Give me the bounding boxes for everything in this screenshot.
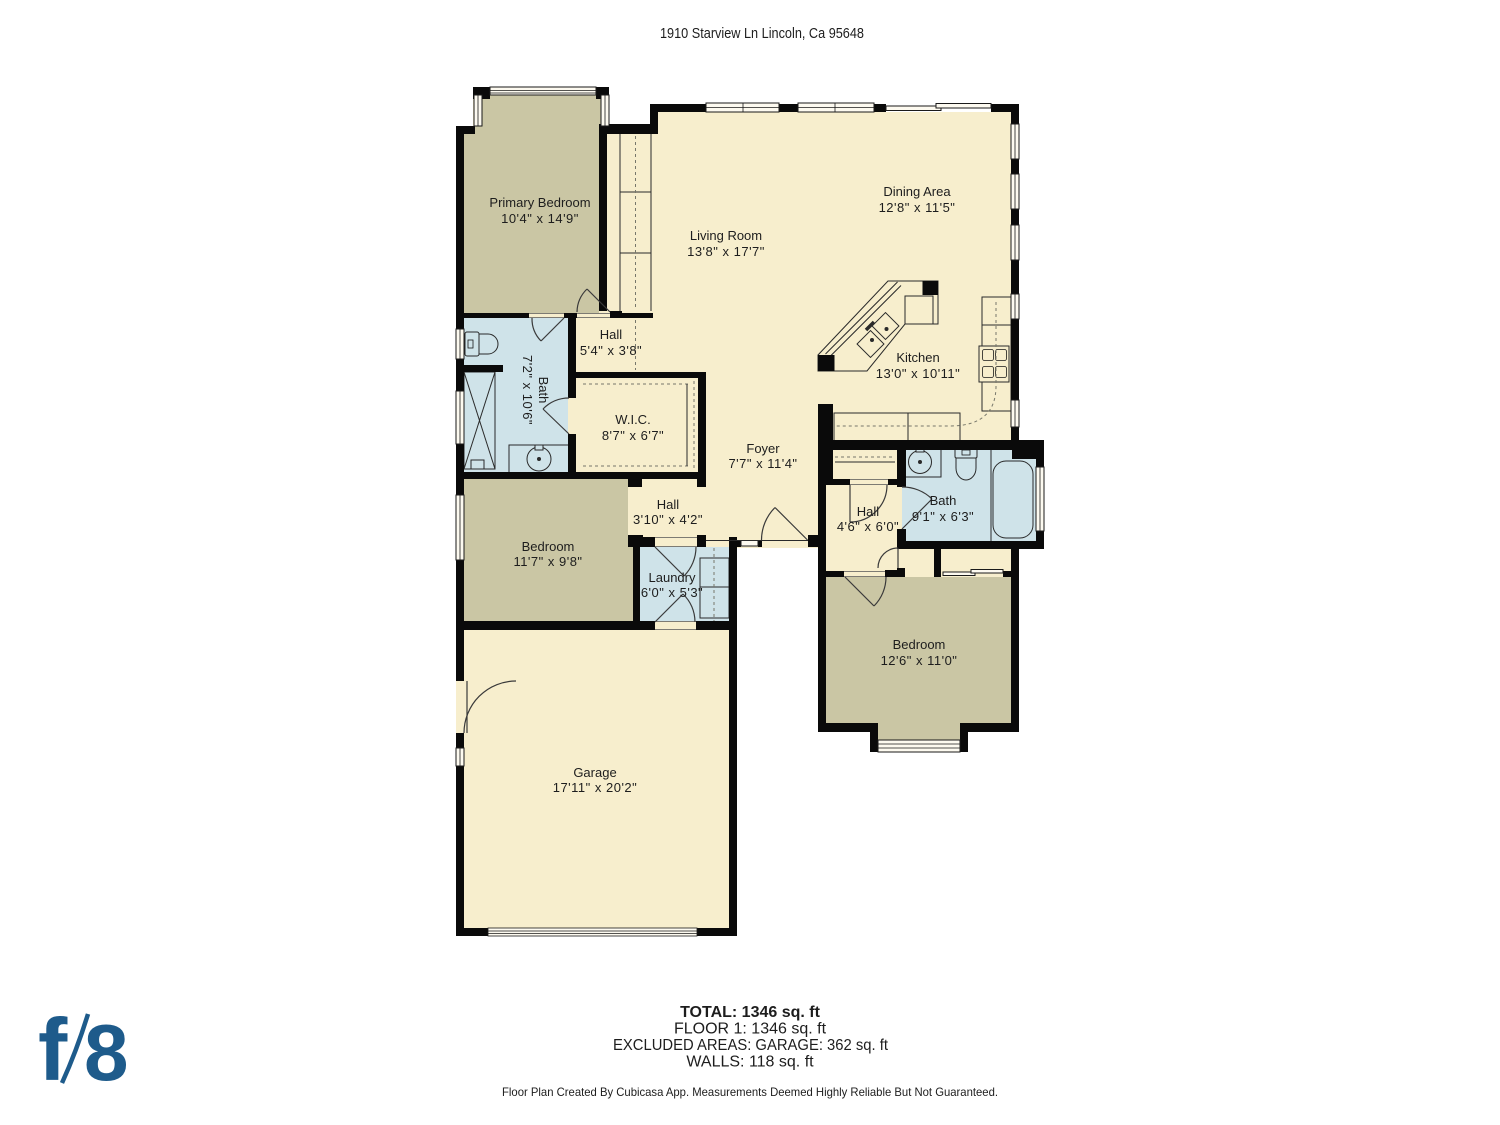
svg-text:Kitchen: Kitchen [896,350,939,365]
svg-text:Garage: Garage [573,765,616,780]
svg-text:Living Room: Living Room [690,228,762,243]
svg-text:6'0" x 5'3": 6'0" x 5'3" [641,585,703,600]
svg-text:TOTAL: 1346 sq. ft: TOTAL: 1346 sq. ft [680,1004,821,1021]
svg-text:FLOOR 1: 1346 sq. ft: FLOOR 1: 1346 sq. ft [674,1021,827,1038]
svg-text:Hall: Hall [857,504,880,519]
svg-text:f: f [38,1000,68,1099]
svg-text:3'10" x 4'2": 3'10" x 4'2" [633,512,703,527]
svg-text:4'6" x 6'0": 4'6" x 6'0" [837,519,899,534]
svg-text:Bedroom: Bedroom [522,539,575,554]
svg-text:13'8" x 17'7": 13'8" x 17'7" [687,244,765,259]
svg-text:7'2" x 10'6": 7'2" x 10'6" [520,355,535,425]
svg-text:1910 Starview Ln Lincoln, Ca 9: 1910 Starview Ln Lincoln, Ca 95648 [660,25,864,42]
svg-text:8'7" x 6'7": 8'7" x 6'7" [602,428,664,443]
svg-text:12'6" x 11'0": 12'6" x 11'0" [881,653,958,668]
svg-text:Hall: Hall [657,497,680,512]
svg-text:7'7" x 11'4": 7'7" x 11'4" [728,456,797,471]
svg-text:Dining Area: Dining Area [883,184,951,199]
svg-text:11'7" x 9'8": 11'7" x 9'8" [513,554,582,569]
svg-text:Hall: Hall [600,327,623,342]
svg-text:Laundry: Laundry [649,570,696,585]
svg-text:Bedroom: Bedroom [893,637,946,652]
svg-text:10'4" x 14'9": 10'4" x 14'9" [501,211,579,226]
svg-text:Foyer: Foyer [746,441,780,456]
svg-text:EXCLUDED AREAS: GARAGE: 362 sq: EXCLUDED AREAS: GARAGE: 362 sq. ft [613,1037,889,1054]
svg-text:WALLS: 118 sq. ft: WALLS: 118 sq. ft [686,1054,814,1071]
svg-text:17'11" x 20'2": 17'11" x 20'2" [553,780,638,795]
svg-text:W.I.C.: W.I.C. [615,412,650,427]
svg-text:Bath: Bath [930,493,957,508]
svg-text:9'1" x 6'3": 9'1" x 6'3" [912,509,974,524]
svg-text:8: 8 [84,1008,129,1097]
svg-text:Floor Plan Created By Cubicasa: Floor Plan Created By Cubicasa App. Meas… [502,1085,998,1099]
svg-text:5'4" x 3'8": 5'4" x 3'8" [580,343,642,358]
svg-text:Bath: Bath [536,377,551,404]
svg-text:Primary Bedroom: Primary Bedroom [489,195,590,210]
svg-text:13'0" x 10'11": 13'0" x 10'11" [876,366,961,381]
svg-text:12'8" x 11'5": 12'8" x 11'5" [879,200,956,215]
